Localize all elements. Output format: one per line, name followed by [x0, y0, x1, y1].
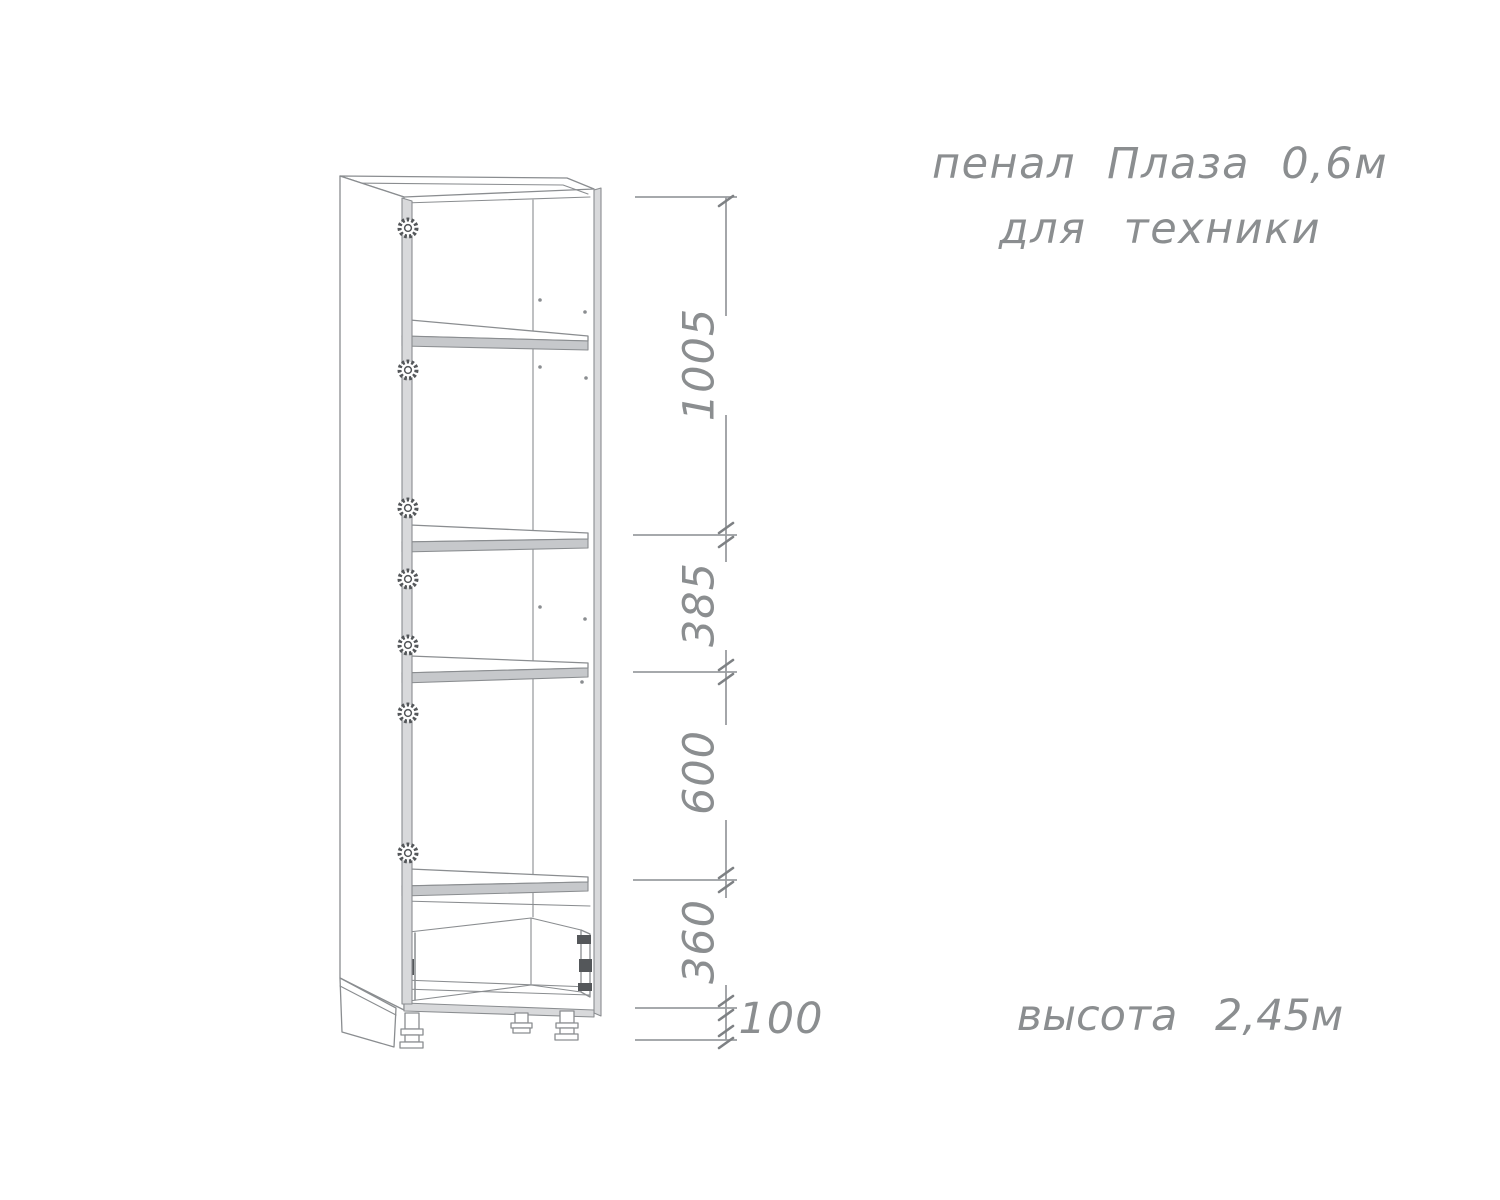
- shelf-pin-holes: [538, 298, 588, 684]
- hinge-fitting-icon: [400, 571, 417, 588]
- hinge-fitting-icon: [400, 362, 417, 379]
- drawer-bottom-edges: [409, 985, 581, 1001]
- dimension-label-100: 100: [721, 998, 841, 1041]
- shelf-1: [402, 320, 588, 350]
- foot-left: [400, 1013, 423, 1048]
- drawer-bottom-rails: [403, 980, 590, 995]
- interior-top-edge: [404, 197, 590, 203]
- dimension-label-1005: 1005: [679, 305, 722, 425]
- height-note: высота 2,45м: [1000, 995, 1360, 1038]
- hinge-fitting-icon: [400, 705, 417, 722]
- shelf-4: [402, 869, 590, 906]
- right-stile: [594, 188, 601, 1016]
- slide-fitting-right-mid: [579, 959, 592, 972]
- hinge-fitting-icon: [400, 220, 417, 237]
- dimension-label-600: 600: [679, 713, 722, 833]
- furniture-drawing-page: пенал Плаза 0,6м для техники высота 2,45…: [0, 0, 1500, 1200]
- foot-middle: [511, 1013, 532, 1033]
- adjustable-feet: [400, 1011, 578, 1048]
- hinge-fitting-icon: [400, 500, 417, 517]
- dimension-label-385: 385: [679, 545, 722, 665]
- dimension-label-360: 360: [679, 882, 722, 1002]
- slide-fitting-right-low: [578, 983, 592, 991]
- side-panel-left: [340, 176, 404, 1010]
- hinge-fitting-icon: [400, 637, 417, 654]
- slide-fitting-right-top: [577, 935, 591, 944]
- drawer-top-edges: [409, 918, 581, 932]
- hinge-fitting-icon: [400, 845, 417, 862]
- left-stile: [402, 198, 412, 1004]
- shelf-3: [402, 656, 588, 683]
- drawing-title-line2: для техники: [930, 208, 1390, 251]
- cabinet-body: [340, 176, 601, 1048]
- drawer-top-rail: [403, 901, 590, 906]
- drawing-title-line1: пенал Плаза 0,6м: [930, 143, 1390, 186]
- drawer-box: [403, 918, 592, 1001]
- shelf-2: [402, 525, 588, 552]
